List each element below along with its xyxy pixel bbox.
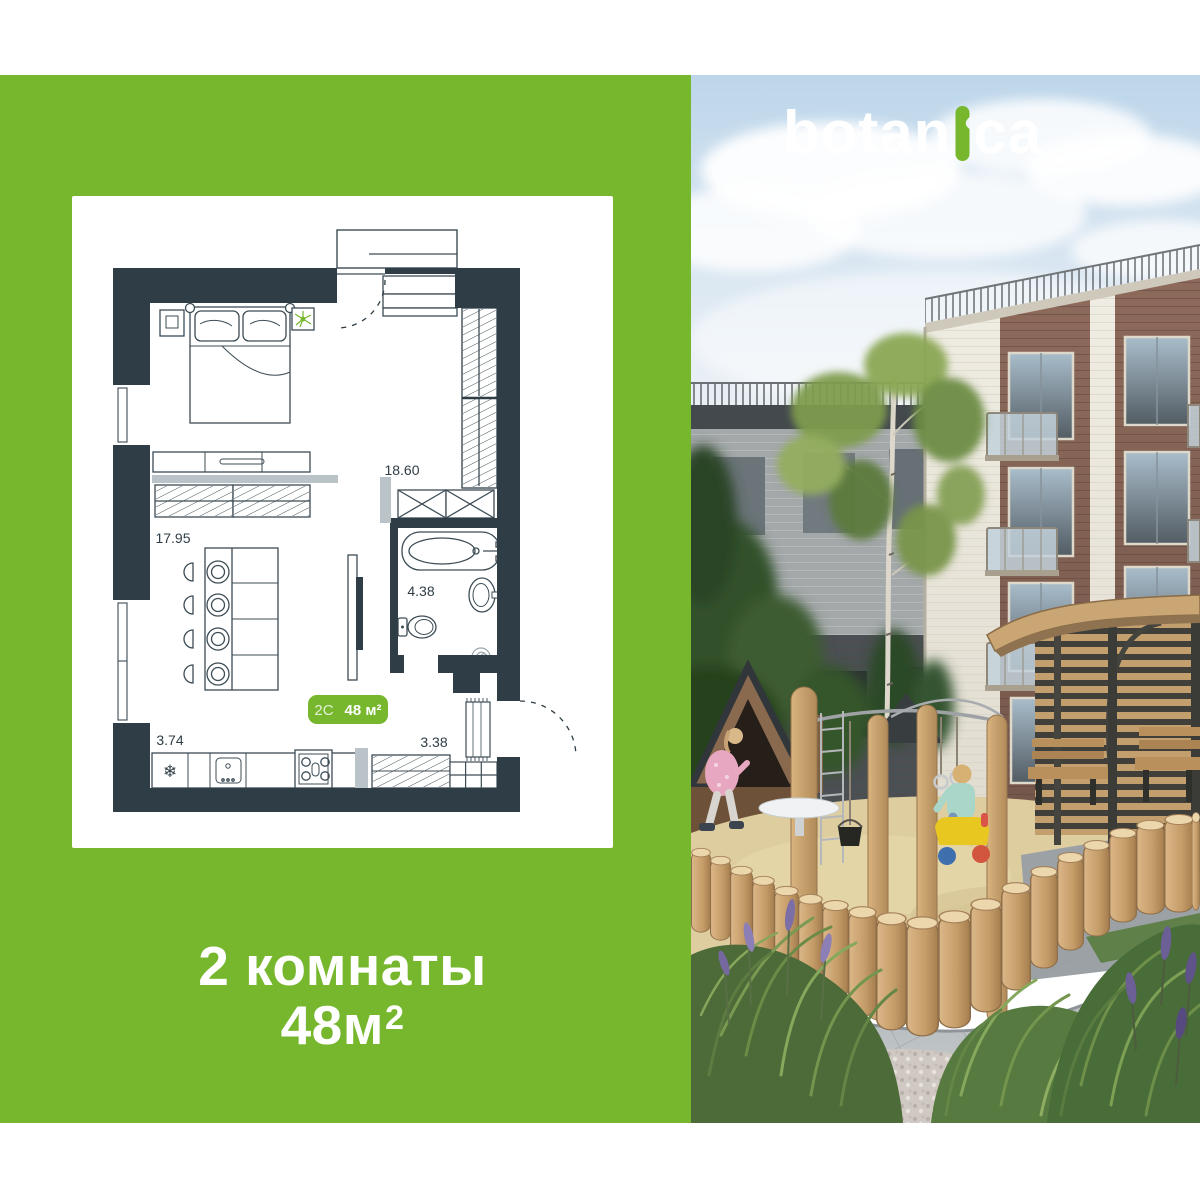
badge-area: 48 м² [345,702,382,719]
bedroom-wardrobe [155,485,310,517]
content-band: ❄ [0,75,1200,1123]
hall-wardrobe [462,308,497,488]
bathroom-area-label: 4.38 [407,583,434,599]
dresser [153,452,310,472]
headline-rooms: 2 комнаты [72,937,613,996]
leaf-i-icon [955,105,970,162]
partition-vertical [380,477,391,523]
logo-text-pre: botan [783,103,951,163]
hall-area-label: 18.60 [384,462,419,478]
floor-plan: ❄ [72,196,613,848]
entry-rug [372,755,450,788]
stove [295,750,332,788]
tv-unit [348,555,363,680]
headline-area: 48м2 [72,996,613,1055]
entry-area-label: 3.38 [420,734,447,750]
bedroom-furniture [160,304,314,424]
green-panel: ❄ [0,75,691,1123]
brand-logo: botanca квартал-парк [783,103,1042,192]
kitchen-counter [152,750,365,788]
poster: ❄ [0,0,1200,1200]
partition [152,475,338,483]
dining-table [205,548,278,690]
pillow [195,311,239,341]
shoe-cabinet [450,762,497,788]
entry-door-arc [520,701,576,757]
floor-plan-card: ❄ [72,196,613,848]
doormat [466,698,490,761]
living-area-label: 17.95 [155,530,190,546]
hall-cabinets [383,276,457,316]
apartment-badge: 2С 48 м² [308,695,388,724]
photo-panel: botanca квартал-парк [691,75,1200,1123]
toddler-head [953,765,972,784]
nightstand [160,310,184,336]
storage-boxes [398,490,494,518]
child-head [727,728,743,744]
logo-text-post: ca [973,103,1042,163]
kitchen-pillar [355,748,368,788]
stools [184,563,193,683]
headline: 2 комнаты 48м2 [72,937,613,1056]
balcony [337,230,457,268]
brand-wordmark: botanca [783,103,1042,163]
kitchen-area-label: 3.74 [156,732,183,748]
balcony-door-arc [337,280,385,328]
brand-subtitle: квартал-парк [786,172,1042,192]
badge-code: 2С [314,702,333,719]
courtyard-photo [691,75,1200,1123]
fridge-snowflake-icon: ❄ [163,762,177,781]
